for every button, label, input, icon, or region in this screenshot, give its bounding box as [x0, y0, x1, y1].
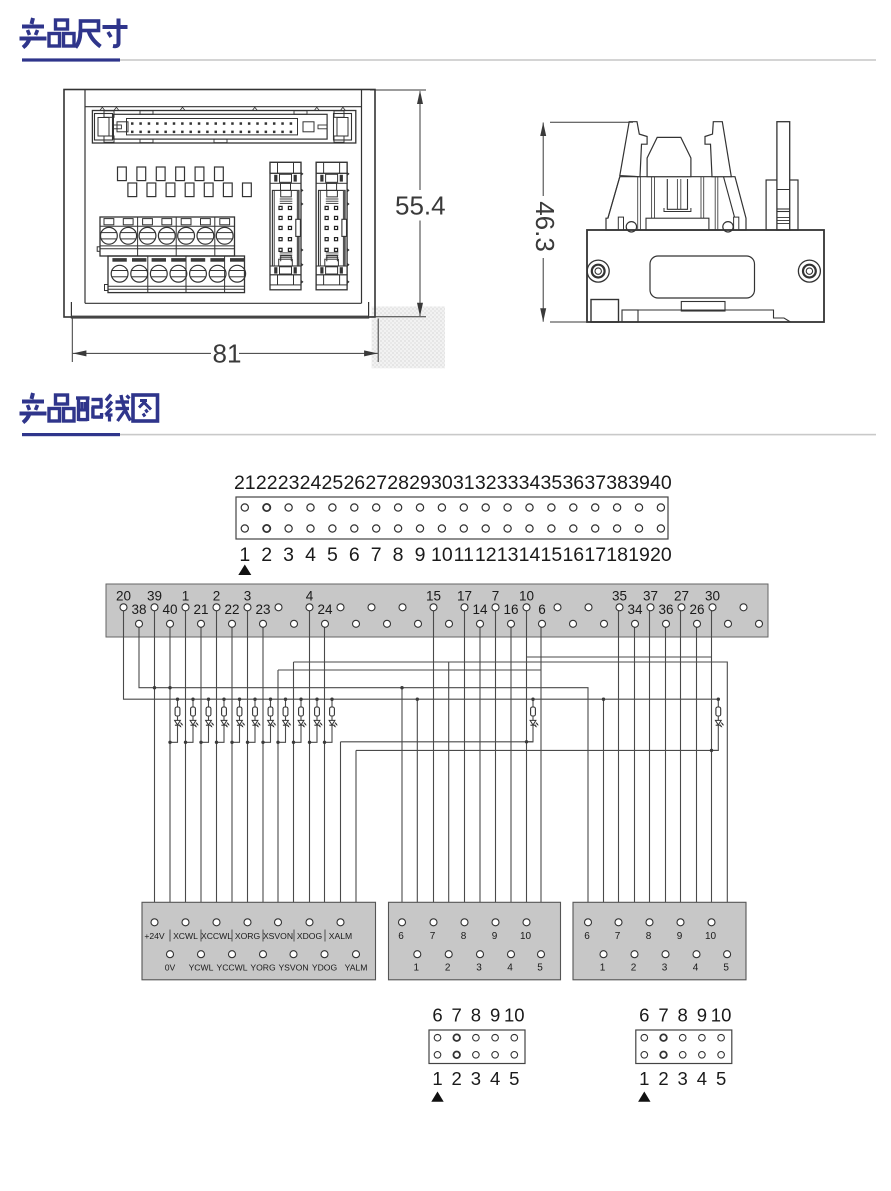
svg-text:36: 36 [658, 602, 673, 617]
svg-text:5: 5 [537, 962, 543, 973]
svg-text:1: 1 [414, 962, 420, 973]
svg-text:10: 10 [711, 1005, 732, 1026]
svg-text:8: 8 [461, 931, 467, 942]
svg-text:1: 1 [432, 1068, 442, 1089]
svg-text:8: 8 [393, 544, 404, 566]
svg-text:34: 34 [519, 472, 541, 494]
svg-text:1: 1 [182, 589, 190, 604]
svg-text:14: 14 [472, 602, 488, 617]
svg-text:6: 6 [398, 931, 404, 942]
svg-text:29: 29 [409, 472, 431, 494]
svg-text:5: 5 [716, 1068, 726, 1089]
svg-text:12: 12 [475, 544, 497, 566]
svg-text:27: 27 [365, 472, 387, 494]
svg-text:YSVON: YSVON [278, 963, 308, 973]
svg-text:13: 13 [497, 544, 519, 566]
svg-text:18: 18 [606, 544, 628, 566]
svg-text:XCWL: XCWL [173, 931, 198, 941]
svg-text:22: 22 [224, 602, 239, 617]
svg-text:11: 11 [454, 544, 474, 566]
svg-text:6: 6 [639, 1005, 649, 1026]
svg-text:31: 31 [453, 472, 475, 494]
svg-text:38: 38 [131, 602, 146, 617]
svg-text:40: 40 [162, 602, 177, 617]
svg-text:15: 15 [541, 544, 563, 566]
svg-text:2: 2 [261, 544, 272, 566]
svg-text:15: 15 [426, 589, 441, 604]
svg-text:4: 4 [693, 962, 699, 973]
svg-text:10: 10 [520, 931, 532, 942]
svg-text:3: 3 [476, 962, 482, 973]
svg-text:1: 1 [600, 962, 606, 973]
svg-text:5: 5 [723, 962, 729, 973]
svg-text:8: 8 [646, 931, 652, 942]
svg-text:8: 8 [678, 1005, 688, 1026]
svg-text:37: 37 [643, 589, 658, 604]
svg-text:39: 39 [628, 472, 650, 494]
svg-text:7: 7 [452, 1005, 462, 1026]
svg-text:5: 5 [509, 1068, 519, 1089]
svg-text:35: 35 [612, 589, 627, 604]
svg-text:34: 34 [627, 602, 643, 617]
svg-text:30: 30 [431, 472, 453, 494]
svg-text:XORG: XORG [235, 931, 261, 941]
svg-text:20: 20 [116, 589, 131, 604]
svg-text:55.4: 55.4 [395, 191, 446, 221]
svg-text:28: 28 [387, 472, 409, 494]
svg-text:5: 5 [327, 544, 338, 566]
svg-text:20: 20 [650, 544, 672, 566]
svg-text:30: 30 [705, 589, 720, 604]
svg-text:21: 21 [193, 602, 208, 617]
svg-text:9: 9 [677, 931, 683, 942]
svg-text:3: 3 [244, 589, 252, 604]
svg-text:YCWL: YCWL [189, 963, 214, 973]
svg-text:4: 4 [697, 1068, 707, 1089]
svg-text:24: 24 [300, 472, 322, 494]
svg-text:6: 6 [349, 544, 360, 566]
svg-text:10: 10 [431, 544, 453, 566]
svg-text:16: 16 [562, 544, 584, 566]
svg-text:3: 3 [283, 544, 294, 566]
svg-text:23: 23 [278, 472, 300, 494]
svg-text:YCCWL: YCCWL [216, 963, 247, 973]
svg-text:7: 7 [371, 544, 382, 566]
svg-text:2: 2 [213, 589, 221, 604]
svg-text:4: 4 [490, 1068, 500, 1089]
svg-text:+24V: +24V [144, 931, 165, 941]
svg-text:XSVON: XSVON [263, 931, 293, 941]
svg-text:1: 1 [639, 1068, 649, 1089]
svg-text:19: 19 [628, 544, 650, 566]
svg-text:10: 10 [504, 1005, 525, 1026]
svg-text:7: 7 [492, 589, 500, 604]
svg-text:9: 9 [490, 1005, 500, 1026]
svg-text:9: 9 [697, 1005, 707, 1026]
svg-text:35: 35 [541, 472, 563, 494]
svg-text:23: 23 [255, 602, 270, 617]
svg-text:2: 2 [658, 1068, 668, 1089]
svg-text:27: 27 [674, 589, 689, 604]
svg-text:39: 39 [147, 589, 162, 604]
svg-text:8: 8 [471, 1005, 481, 1026]
svg-text:YDOG: YDOG [312, 963, 338, 973]
svg-text:37: 37 [584, 472, 606, 494]
svg-text:3: 3 [471, 1068, 481, 1089]
svg-text:24: 24 [317, 602, 333, 617]
svg-text:7: 7 [430, 931, 436, 942]
svg-text:3: 3 [678, 1068, 688, 1089]
svg-text:0V: 0V [165, 963, 176, 973]
svg-text:2: 2 [452, 1068, 462, 1089]
svg-text:7: 7 [615, 931, 621, 942]
svg-text:14: 14 [519, 544, 541, 566]
svg-text:26: 26 [689, 602, 704, 617]
svg-text:17: 17 [584, 544, 606, 566]
svg-text:10: 10 [705, 931, 717, 942]
svg-text:2: 2 [445, 962, 451, 973]
svg-text:XDOG: XDOG [297, 931, 323, 941]
svg-text:9: 9 [492, 931, 498, 942]
svg-text:10: 10 [519, 589, 534, 604]
svg-text:1: 1 [239, 544, 250, 566]
svg-text:25: 25 [322, 472, 344, 494]
svg-text:17: 17 [457, 589, 472, 604]
svg-text:YORG: YORG [250, 963, 276, 973]
svg-text:32: 32 [475, 472, 497, 494]
svg-text:XCCWL: XCCWL [201, 931, 232, 941]
svg-text:4: 4 [306, 589, 314, 604]
svg-text:16: 16 [503, 602, 518, 617]
svg-text:6: 6 [432, 1005, 442, 1026]
svg-text:9: 9 [415, 544, 426, 566]
svg-text:3: 3 [662, 962, 668, 973]
svg-text:26: 26 [343, 472, 365, 494]
svg-text:22: 22 [256, 472, 278, 494]
svg-text:XALM: XALM [329, 931, 352, 941]
svg-text:40: 40 [650, 472, 672, 494]
svg-text:4: 4 [507, 962, 513, 973]
svg-text:2: 2 [631, 962, 637, 973]
svg-text:46.3: 46.3 [530, 201, 560, 252]
svg-text:4: 4 [305, 544, 316, 566]
svg-text:21: 21 [234, 472, 256, 494]
svg-text:36: 36 [562, 472, 584, 494]
svg-text:81: 81 [213, 339, 242, 369]
svg-text:38: 38 [606, 472, 628, 494]
svg-text:7: 7 [658, 1005, 668, 1026]
svg-text:6: 6 [538, 602, 546, 617]
svg-text:6: 6 [584, 931, 590, 942]
svg-text:33: 33 [497, 472, 519, 494]
svg-text:YALM: YALM [345, 963, 368, 973]
